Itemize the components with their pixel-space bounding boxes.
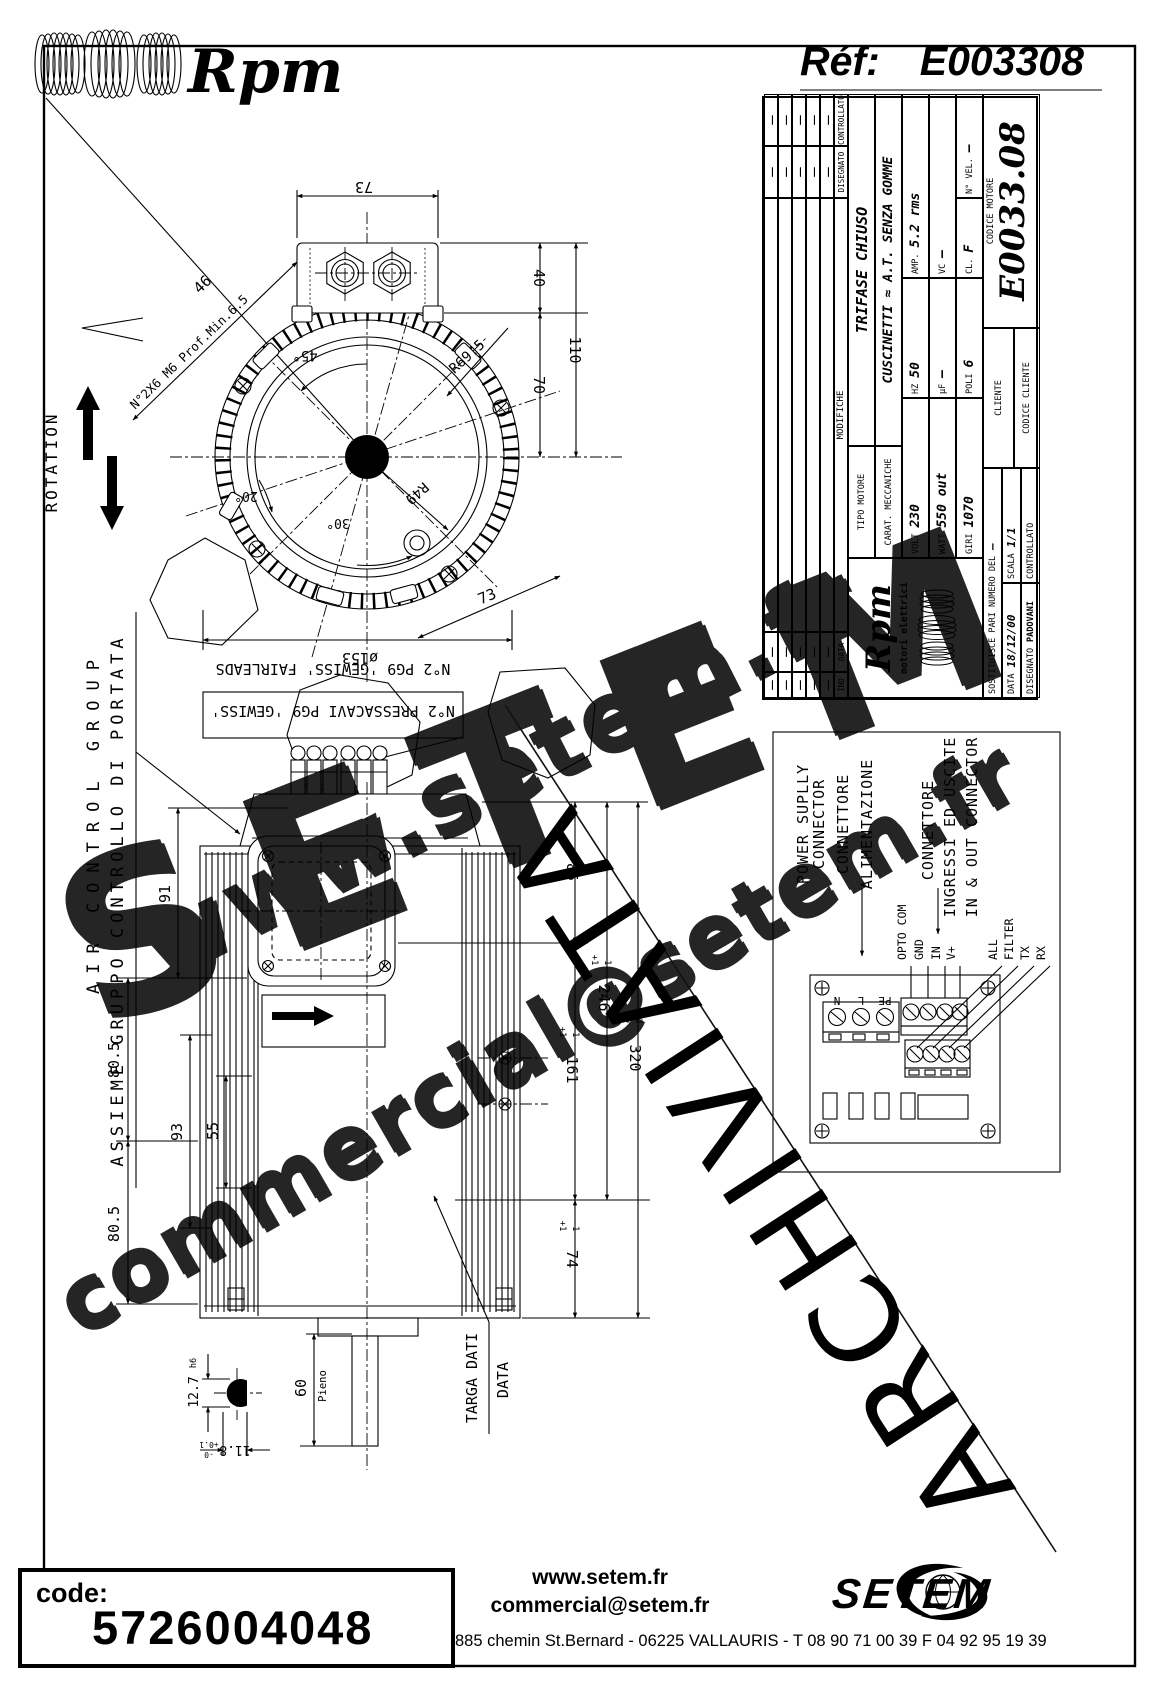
rev-col-ind: IND — [834, 672, 848, 698]
uf-label: μF — [938, 384, 948, 394]
giri-value: 1070 — [962, 496, 977, 527]
footer-site: www.setem.fr — [445, 1564, 755, 1592]
tb-rpm-logo: Rpm — [859, 584, 899, 672]
sostituisce-label: SOSTITUISCE PARI NUMERO DEL — [988, 556, 998, 694]
rev-dash: – — [806, 115, 820, 125]
title-block-wrapper: – – – – – – – – – – – – – – – – – – – – … — [762, 96, 1038, 700]
disegnato-value: PADOVANI — [1026, 601, 1036, 642]
rev-col-modifiche: MODIFICHE — [834, 198, 848, 632]
hz-label: HZ — [911, 384, 921, 394]
rev-col-controllato: CONTROLLATO — [834, 94, 848, 146]
rev-dash: – — [778, 647, 792, 657]
nvel-value: – — [962, 144, 977, 152]
tipo-motore-label: TIPO MOTORE — [857, 474, 867, 530]
rev-dash: – — [820, 115, 834, 125]
amp-label: AMP. — [911, 254, 921, 274]
data-value: 18/12/00 — [1005, 615, 1018, 668]
scala-label: SCALA — [1007, 553, 1017, 579]
rev-dash: – — [764, 647, 778, 657]
watt-label: WATT — [938, 534, 948, 554]
codice-cliente-label: CODICE CLIENTE — [1022, 362, 1032, 434]
controllato-label: CONTROLLATO — [1026, 523, 1036, 579]
codice-motore-value: E0033.08 — [996, 121, 1030, 301]
tb-rpm-sub: motori elettrici — [899, 582, 910, 674]
volt-label: VOLT — [911, 534, 921, 554]
rev-dash: – — [792, 115, 806, 125]
reference-header: Réf:E003308 — [800, 38, 1140, 85]
ref-label: Réf: — [800, 38, 880, 84]
rev-dash: – — [792, 167, 806, 177]
data-label: DATA — [1007, 674, 1017, 694]
tipo-motore-value: TRIFASE CHIUSO — [853, 207, 871, 333]
cl-value: F — [962, 245, 977, 253]
scala-value: 1/1 — [1005, 528, 1018, 548]
tb-coil-icon — [914, 573, 960, 683]
volt-value: 230 — [908, 504, 923, 527]
footer-address: 885 chemin St.Bernard - 06225 VALLAURIS … — [455, 1632, 1055, 1651]
rev-dash: – — [820, 167, 834, 177]
footer-contacts: www.setem.fr commercial@setem.fr — [445, 1564, 755, 1620]
rev-dash: – — [792, 680, 806, 690]
nvel-label: N° VEL. — [965, 158, 975, 194]
code-value: 5726004048 — [92, 1600, 373, 1655]
rev-dash: – — [778, 680, 792, 690]
poli-label: POLI — [965, 374, 975, 394]
uf-value: – — [935, 370, 950, 378]
code-box: code: 5726004048 — [18, 1568, 455, 1668]
disegnato-label: DISEGNATO — [1026, 648, 1036, 694]
rev-dash: – — [764, 167, 778, 177]
vc-value: – — [935, 250, 950, 258]
title-block: – – – – – – – – – – – – – – – – – – – – … — [762, 96, 1038, 700]
poli-value: 6 — [962, 360, 977, 368]
cliente-label: CLIENTE — [994, 380, 1004, 416]
ref-value: E003308 — [920, 38, 1084, 84]
rev-dash: – — [764, 680, 778, 690]
rev-dash: – — [806, 167, 820, 177]
rev-dash: – — [778, 167, 792, 177]
hz-value: 50 — [908, 362, 923, 378]
rev-dash: – — [806, 680, 820, 690]
rev-dash: – — [820, 680, 834, 690]
rev-dash: – — [764, 115, 778, 125]
rev-dash: – — [778, 115, 792, 125]
amp-value: 5.2 rms — [908, 193, 923, 248]
archiviata-stamp-text: ARCHIVIATA — [471, 775, 1041, 1549]
footer-email: commercial@setem.fr — [445, 1592, 755, 1620]
scanned-drawing-sheet: { "header": {"brand": "Rpm", "ref_label"… — [0, 0, 1154, 1683]
carat-meccaniche-value: CUSCINETTI ≈ A.T. SENZA GOMME — [881, 157, 896, 384]
cl-label: CL. — [965, 259, 975, 274]
vc-label: VC — [938, 264, 948, 274]
rev-dash: – — [792, 647, 806, 657]
carat-meccaniche-label: CARAT. MECCANICHE — [884, 459, 894, 546]
giri-label: GIRI — [965, 534, 975, 554]
rev-col-data: DATA — [834, 632, 848, 672]
watt-value: 550 out — [935, 473, 950, 528]
rev-dash: – — [806, 647, 820, 657]
sostituisce-value: – — [986, 543, 999, 550]
rev-col-disegnato: DISEGNATO — [834, 146, 848, 198]
rev-dash: – — [820, 647, 834, 657]
